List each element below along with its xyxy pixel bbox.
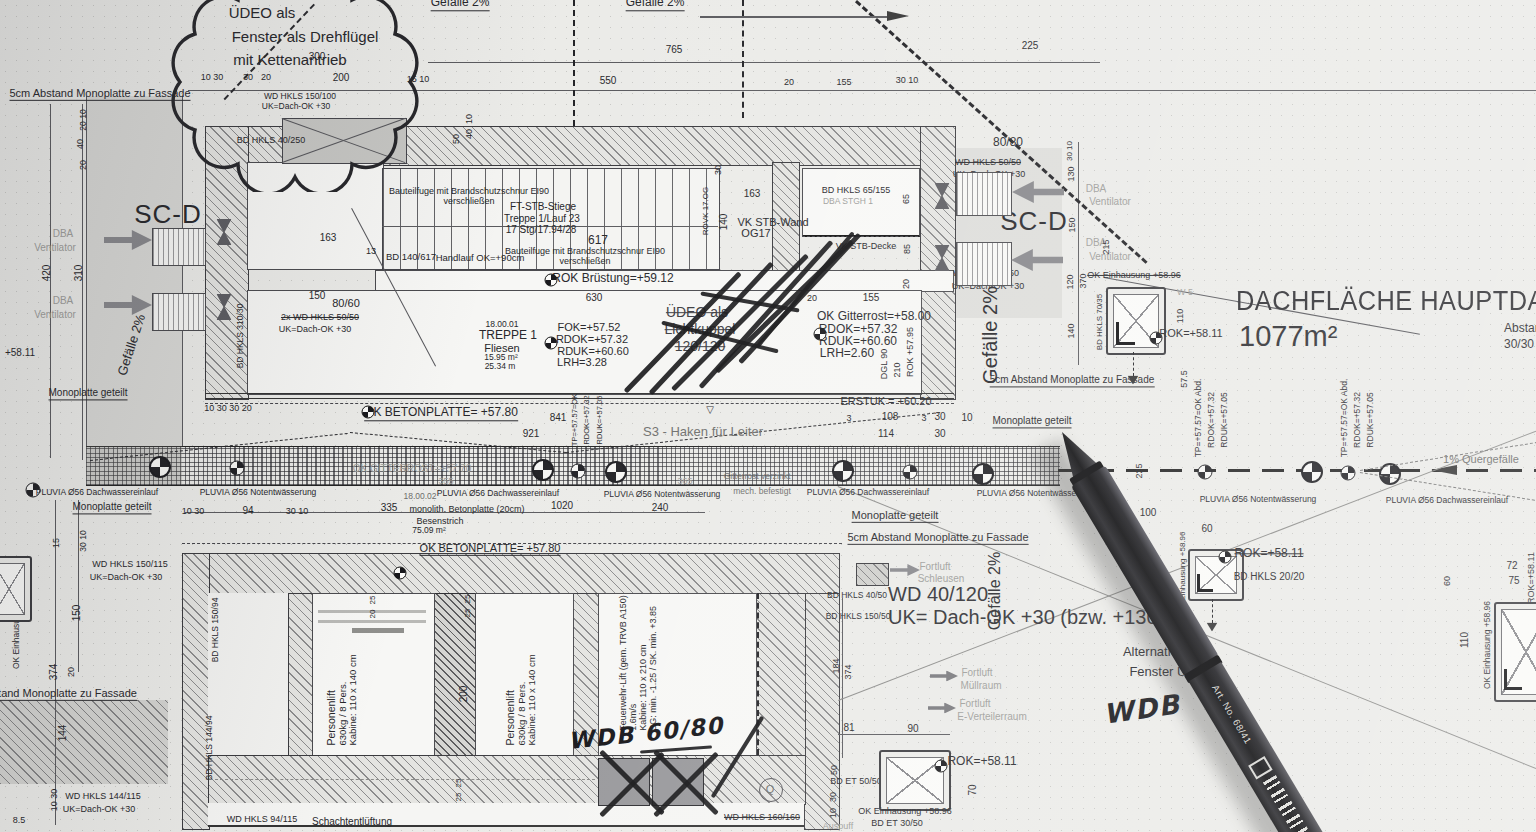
dim-label: 20	[66, 667, 76, 677]
lift-cabin: Kabine: 110 x 140 cm	[348, 654, 359, 745]
level-label: OK Einhausung +58.96	[1483, 601, 1493, 689]
bottom-wall-dash	[215, 779, 595, 780]
dim-label: 374	[48, 664, 59, 681]
dim-label: 550	[600, 75, 617, 86]
dim-label: 163	[320, 232, 337, 243]
exhaust-label: E-Verteilerraum	[957, 711, 1026, 722]
drain-label: PLUVIA Ø56 Notentwässerung	[604, 490, 721, 500]
dim-label: 25	[455, 793, 464, 802]
level-label: TP=+57.57=OK Abd.	[1340, 379, 1350, 458]
cloud-note: Fenster als Drehflügel	[232, 29, 379, 46]
dim-label: 25	[369, 596, 378, 605]
dim-label: 20	[807, 293, 817, 303]
dim-label: 30	[934, 411, 945, 422]
airflow-arrow-icon	[930, 671, 958, 682]
dim-label: 94	[242, 505, 253, 516]
einhausung-box-edge	[0, 556, 32, 622]
dim-label: 70	[967, 784, 978, 795]
dim-label: 10	[464, 114, 474, 124]
level-label: ROK +57.95	[905, 327, 915, 377]
duct-label: BD HKLS 310/30	[236, 304, 246, 369]
handwritten-note: WDB	[1102, 688, 1183, 729]
dim-label: 110	[1175, 309, 1185, 323]
vent-box	[152, 293, 206, 331]
firelift-cabin: Kabine: 110 x 210 cm	[638, 595, 648, 731]
level-target-icon	[935, 760, 948, 773]
emergency-drain-icon	[1341, 466, 1356, 481]
level-label: RDUK=+57.05	[1366, 392, 1376, 447]
axis-dash-line	[1058, 469, 1536, 472]
dim-line	[428, 62, 1100, 63]
duct-label: BD ET 50/50	[830, 776, 881, 786]
dim-label: 8.5	[13, 815, 26, 825]
drawing-title: DACHFLÄCHE HAUPTDACH	[1236, 286, 1536, 316]
duct-label: BD HKLS 144/94	[205, 716, 215, 781]
duct-label: BD HKLS 20/20	[1234, 571, 1305, 582]
roof-drain-icon	[1301, 461, 1323, 483]
shaft-vent-label: Schachtentlüftung	[312, 816, 392, 827]
duct-label: DBA STGH 1	[823, 197, 873, 207]
vent-box	[956, 172, 1012, 216]
strip-edge	[86, 96, 87, 462]
wall-note: OG17	[741, 227, 770, 239]
stair-label: Treppe 1/Lauf 23	[504, 213, 580, 224]
crossed-vent-box	[652, 758, 704, 806]
emergency-drain-icon	[1198, 465, 1213, 480]
level-label: RDOK=+57.32	[556, 333, 628, 345]
level-label: TP=+57.57=OK Abd.	[1194, 379, 1204, 458]
plate-note: Monoplatte geteilt	[852, 509, 939, 523]
level-label: RDUK=+57.05	[1220, 392, 1230, 447]
dim-label: 15 10	[407, 74, 430, 84]
dim-line	[1078, 142, 1079, 365]
duct-size-note: WD 40/120	[888, 583, 988, 605]
dim-label: 140	[1066, 323, 1076, 338]
exhaust-label: Fortluft	[959, 698, 990, 709]
dim-label: 75	[1508, 575, 1519, 586]
duct-hatch	[856, 563, 889, 586]
dim-label: 72	[1506, 560, 1517, 571]
dim-label: 30	[243, 72, 253, 82]
dim-label: 10 30	[49, 789, 59, 812]
dim-label: 420	[41, 265, 52, 282]
duct-label: 2x WD HKLS 50/50	[281, 312, 359, 322]
joint-note: verschließen	[559, 256, 610, 266]
dim-label: 80/60	[332, 297, 360, 309]
exhaust-label: Müllraum	[960, 680, 1001, 691]
airflow-arrow-icon	[890, 564, 920, 576]
dim-label: 150	[309, 290, 326, 301]
dim-label: 108	[882, 411, 899, 422]
duct-label: BD HKLS 150/94	[211, 598, 221, 663]
duct-label: BD HKLS 150/50	[826, 612, 891, 622]
dim-label: 60	[1201, 523, 1212, 534]
dim-label: 10	[961, 412, 972, 423]
dim-label: 80/80	[993, 136, 1023, 149]
level-label: OK Einhausung +58.96	[1087, 270, 1180, 280]
arrow-right-icon	[887, 11, 909, 21]
dim-label: 50	[451, 134, 461, 144]
dim-label: 335	[381, 502, 398, 513]
duct-label: WD HKLS 94/115	[227, 814, 297, 824]
level-target-icon	[545, 274, 558, 287]
drain-label: PLUVIA Ø56 Dachwassereinlauf	[807, 488, 929, 498]
dim-label: 25	[455, 779, 464, 788]
exhaust-label: Fortluft	[961, 667, 992, 678]
level-label: ROK=+58.11	[1159, 327, 1222, 339]
stair-label: FT-STB-Stiege	[510, 201, 576, 212]
joint-note: verschließen	[443, 196, 494, 206]
dim-label: 765	[666, 44, 683, 55]
duct-label: DGL 90	[879, 349, 889, 380]
facade-note: Abstand Monoplatte zu Fassade	[0, 687, 137, 701]
dim-label: 200	[333, 72, 350, 83]
ventilator-label: Ventilator	[34, 309, 76, 320]
duct-label: BD HKLS 40/50	[827, 591, 887, 601]
duct-label: WD HKLS 150/115	[92, 559, 167, 569]
dim-label: 215	[1101, 239, 1111, 254]
emergency-drain-icon	[571, 464, 586, 479]
level-label: ROK=+58.11	[947, 755, 1016, 768]
facade-note: 5cm Abstand Monoplatte zu Fassade	[848, 531, 1029, 545]
duct-label: WD HKLS 50/50	[955, 157, 1021, 167]
level-label: ROK=+58.11	[1234, 547, 1303, 560]
dim-line	[82, 104, 83, 460]
duct-label: BD HKLS 70/35	[1096, 294, 1105, 350]
dim-label: 155	[836, 77, 851, 87]
level-symbol: ▽	[706, 404, 714, 415]
roof-drain-icon	[149, 456, 171, 478]
dim-label: 15	[51, 538, 61, 548]
dim-label: 57.5	[1179, 370, 1189, 388]
dim-label: 365	[677, 476, 692, 486]
level-label: ROK Brüstung=+59.12	[552, 272, 673, 285]
dim-label: 90	[907, 723, 918, 734]
drop-dash	[1212, 599, 1213, 623]
dim-label: 40	[464, 129, 474, 139]
level-label: OK BETONPLATTE= +57.80	[364, 406, 518, 421]
drain-label: PLUVIA Ø56 Dachwassereinlauf	[437, 489, 559, 499]
dim-label: 10	[828, 808, 838, 818]
dim-label: 355	[438, 476, 453, 486]
dim-label: 25	[464, 595, 473, 604]
ladder-note: S3 - Haken für Leiter	[643, 425, 763, 440]
dim-label: 155	[863, 292, 880, 303]
dim-label: 310	[73, 265, 84, 282]
facade-note: 5cm Abstand Monoplatte zu Fassade	[10, 87, 191, 101]
level-label: FOK=+57.52	[558, 321, 621, 333]
vent-box	[152, 228, 206, 266]
room-area: 75.09 m²	[412, 526, 446, 536]
blueprint-roof-plan-photo: ÜDEO als Fenster als Drehflügel mit Kett…	[0, 0, 1536, 832]
einhausung-box	[1494, 602, 1536, 702]
dim-label: 20	[261, 72, 271, 82]
pen-check-mark	[1504, 669, 1522, 690]
dim-label: 100	[1140, 507, 1157, 518]
edge-note: 30/30	[1504, 338, 1534, 351]
einhausung-inner	[0, 563, 25, 615]
duct-label: WD HKLS 144/115	[65, 791, 140, 801]
wall-left-lower	[182, 553, 210, 830]
gefaelle-arrow-line	[700, 16, 892, 18]
dim-label: 130	[1066, 166, 1076, 181]
joint-note: Bauteilfuge mit Brandschutzschnur EI90	[505, 246, 665, 256]
emergency-drain-icon	[903, 465, 918, 480]
ventilator-label: Ventilator	[1089, 196, 1131, 207]
dim-label: 225	[1134, 463, 1144, 478]
wall-right	[920, 126, 956, 400]
dim-line	[838, 734, 950, 735]
dim-label: 3	[921, 413, 926, 423]
grid-label: W 5	[1177, 287, 1193, 297]
drain-label: PLUVIA Ø56 Notentwässerung	[200, 488, 317, 498]
wall-c	[755, 593, 806, 757]
firelift-room-label: Feuerwehr-Lift (gem. TRVB A150) 1.6m/s K…	[618, 595, 658, 731]
room-perimeter: 25.34 m	[485, 362, 516, 372]
duct-label: BD 140/617	[386, 252, 436, 263]
dim-label: 630	[586, 292, 603, 303]
lift-room-label: Personenlift 630kg / 8 Pers. Kabine: 110…	[326, 654, 359, 745]
emergency-drain-icon	[230, 461, 245, 476]
dim-label: 184	[831, 658, 841, 673]
dim-label: 210	[892, 362, 902, 377]
dim-label: 163	[744, 188, 761, 199]
roof-drain-icon	[605, 461, 627, 483]
slab-note: monolith. Betonplatte (20cm)	[409, 504, 524, 514]
dim-label: 85	[902, 244, 912, 254]
room-number: 18.00.02	[403, 492, 436, 502]
dim-label: 13	[366, 246, 376, 256]
dim-label: 30	[828, 792, 838, 802]
level-label: +58.11	[5, 347, 35, 358]
dim-label: 300	[309, 51, 326, 62]
dim-label: 200	[458, 686, 469, 703]
trvb-dash-line	[757, 593, 759, 755]
arrow-down-icon	[1207, 623, 1218, 632]
level-target-icon	[1219, 551, 1232, 564]
pen-check-mark	[1197, 574, 1213, 592]
dim-label: 240	[652, 502, 669, 513]
einhausung-box	[1106, 287, 1166, 355]
roof-drain-icon	[972, 463, 994, 485]
slope-label: Gefälle 2%	[986, 552, 1004, 630]
level-label: RDOK=+57.32	[1207, 392, 1217, 448]
grating-note: Gitterrost verzinkt	[724, 472, 791, 482]
level-target-icon	[814, 328, 827, 341]
joint-note: Bauteilfuge mit Brandschutzschnur EI90	[389, 186, 549, 196]
dim-label: 10 30 30 20	[204, 403, 252, 413]
wall-a	[288, 593, 314, 757]
section-mark: SC-D	[134, 200, 202, 229]
lift-cabin: Kabine: 110 x 140 cm	[527, 654, 538, 745]
roof-drain-icon	[832, 460, 854, 482]
dim-label: 81	[843, 722, 854, 733]
level-target-icon	[362, 406, 375, 419]
drain-label: PLUVIA Ø56 Notentwässerung	[1200, 495, 1317, 505]
level-label: LRH=3.28	[557, 356, 607, 368]
room-name: TREPPE 1	[479, 329, 537, 342]
dim-label: 60	[1442, 576, 1452, 586]
level-label: OK Einhausung +58.96	[858, 806, 951, 816]
drain-label: PLUVIA Ø56 Dachwassereinlauf	[36, 488, 158, 498]
dim-label: 20	[78, 160, 88, 170]
dim-label: 65	[901, 194, 911, 204]
level-label: ERSTUK = +60.20	[840, 395, 931, 407]
vent-box	[956, 242, 1012, 286]
dim-label: 150	[71, 605, 82, 622]
dim-label: 30	[713, 165, 723, 175]
pen-check-mark	[1116, 322, 1135, 345]
ventilator-label: DBA	[1086, 183, 1107, 194]
dim-label: 25	[464, 609, 473, 618]
level-label: RDOK=+57.32	[583, 395, 591, 444]
dim-label: 120	[1065, 274, 1075, 289]
plate-note: Monoplatte geteilt	[993, 415, 1072, 428]
plate-note: Monoplatte geteilt	[49, 387, 128, 400]
drop-dash	[1133, 352, 1134, 376]
vent-grille	[318, 620, 426, 623]
exhaust-label: Fortluft	[919, 561, 950, 572]
firelift-sg: SG: min. -1.25 / SK. min. +3.85	[648, 595, 658, 731]
dim-label: 10 30	[201, 72, 224, 82]
cloud-note: mit Kettenantrieb	[233, 52, 346, 69]
slope-label: Gefälle 2%	[431, 0, 490, 12]
dim-label: 3	[846, 413, 851, 423]
dim-label: 150	[1067, 217, 1077, 232]
duct-label: BD HKLS 40/250	[237, 135, 306, 145]
lift-name: Personenlift	[326, 654, 338, 745]
dim-label: 10 30	[182, 506, 205, 516]
gray-hatch-zone	[0, 700, 168, 784]
level-target-icon	[394, 567, 407, 580]
plate-note: Monoplatte geteilt	[73, 501, 152, 514]
roof-area-value: 1077m²	[1239, 320, 1337, 352]
duct-label: UK=Dach-OK +30	[90, 572, 163, 582]
level-label: TP=+57.57=OK	[571, 394, 579, 446]
dim-label: 144	[57, 725, 68, 742]
level-label: RDOK=+57.32	[1353, 392, 1363, 448]
ventilator-label: Ventilator	[34, 242, 76, 253]
dim-label: 40	[75, 139, 85, 149]
wall-bottom-lower	[208, 755, 806, 805]
dim-label: 30 10	[896, 75, 919, 85]
q-symbol-letter: Q	[766, 783, 775, 795]
grid-dash	[742, 0, 744, 118]
dim-label: 114	[878, 428, 894, 439]
level-label: RDUK=+57.05	[596, 396, 604, 445]
dim-label: 20 10	[79, 109, 89, 130]
dim-label: 1020	[551, 500, 573, 511]
duct-label: UK=Dach-OK +30	[63, 804, 136, 814]
dim-label: 20	[901, 279, 911, 289]
grating-note: mech. befestigt	[733, 487, 791, 497]
exhaust-label: Schleusen	[918, 573, 965, 584]
duct-label: WD HKLS 160/160	[724, 812, 800, 822]
dim-label: 921	[523, 428, 540, 439]
duct-label: UK=Dach-OK +30	[279, 324, 352, 334]
dim-label: 30	[934, 428, 945, 439]
dim-label: 20	[784, 77, 794, 87]
level-label: LRH=2.60	[820, 347, 874, 360]
stair-label: 17 Stg/17.94/28	[506, 224, 577, 235]
slope-label: Gefälle 2%	[979, 286, 1001, 384]
dim-label: 225	[1022, 40, 1039, 51]
vent-grille	[352, 628, 404, 633]
duct-label: BD HKLS 65/155	[822, 185, 891, 195]
roof-drain-icon	[532, 459, 554, 481]
firelift-speed: 1.6m/s	[628, 595, 638, 731]
duct-label: UK=Dach-OK +30	[262, 102, 331, 112]
ventilator-label: DBA	[53, 228, 74, 239]
crossed-vent-box	[598, 758, 650, 806]
dim-label: 30 10	[1066, 141, 1075, 161]
duct-label: BD ET 30/50	[871, 818, 922, 828]
ventilator-label: DBA	[53, 295, 74, 306]
lift-room-label: Personenlift 630kg / 8 Pers. Kabine: 110…	[505, 654, 538, 745]
edge-note: Abstand	[1504, 322, 1536, 335]
airflow-arrow-icon	[928, 703, 956, 714]
dim-label: 140	[718, 214, 729, 231]
dim-label: 30 10	[286, 506, 309, 516]
dim-label: 20	[369, 610, 378, 619]
level-label: OK BETONPLATTE= +57.80	[420, 542, 561, 556]
slope-label: Gefälle 2%	[626, 0, 685, 12]
grating-level: OK GITTERROST=+57.70	[353, 463, 471, 474]
dim-label: 110	[1459, 632, 1470, 648]
exhaust-label: Auspuff	[823, 821, 853, 831]
grid-dash	[573, 0, 575, 126]
firelift-name: Feuerwehr-Lift (gem. TRVB A150)	[618, 595, 628, 731]
level-label: ROK=+58.11	[1526, 552, 1536, 604]
cloud-note: ÜDEO als	[229, 5, 296, 22]
lift-name: Personenlift	[505, 654, 517, 745]
dim-label: 50	[829, 765, 839, 775]
drain-label: PLUVIA Ø56 Dachwassereinlauf	[1386, 496, 1508, 506]
shaft-wall	[433, 593, 477, 757]
wall-top-lower	[182, 553, 840, 595]
dim-line	[78, 500, 79, 672]
dim-label: 30 10	[79, 530, 89, 551]
dim-label: 841	[550, 412, 567, 423]
grid-label: ROVK 17.OG	[702, 187, 711, 235]
dim-label: 374	[843, 664, 853, 679]
